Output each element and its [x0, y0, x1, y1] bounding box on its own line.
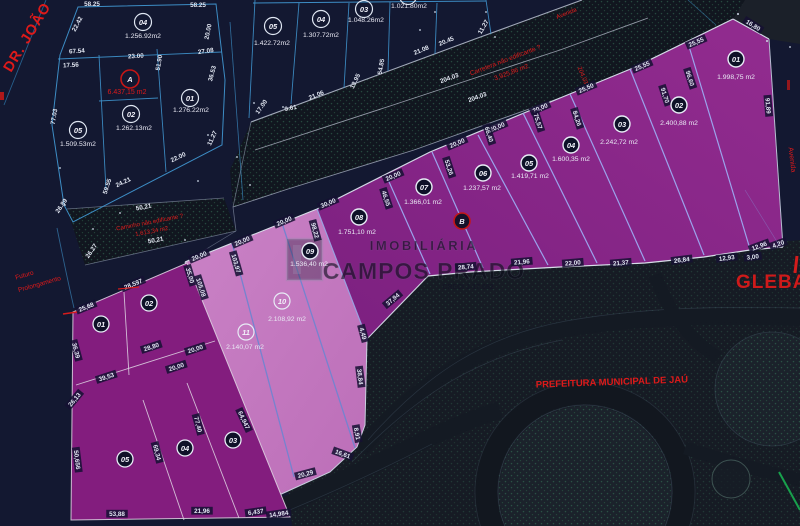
svg-text:01: 01 — [97, 320, 105, 329]
svg-text:1.237,57 m2: 1.237,57 m2 — [463, 185, 501, 192]
svg-text:01: 01 — [732, 55, 740, 64]
svg-text:6.437,15 m2: 6.437,15 m2 — [108, 89, 147, 96]
svg-text:11: 11 — [242, 328, 250, 337]
svg-text:1.751,10 m2: 1.751,10 m2 — [338, 229, 376, 236]
svg-text:2.108,92 m2: 2.108,92 m2 — [268, 316, 306, 323]
svg-text:21,37: 21,37 — [613, 259, 630, 267]
svg-text:1.536,40 m2: 1.536,40 m2 — [290, 261, 328, 268]
svg-text:1.366,01 m2: 1.366,01 m2 — [404, 199, 442, 206]
svg-text:1.262.13m2: 1.262.13m2 — [116, 125, 152, 132]
svg-text:B: B — [459, 217, 465, 226]
svg-text:IMOBILIÁRIA: IMOBILIÁRIA — [370, 238, 478, 253]
svg-text:02: 02 — [127, 110, 136, 119]
svg-text:17.56: 17.56 — [63, 61, 80, 69]
svg-text:GLEBA A: GLEBA A — [736, 272, 800, 293]
svg-text:CRECI J-17.652: CRECI J-17.652 — [442, 284, 493, 291]
svg-text:23.00: 23.00 — [128, 52, 145, 60]
svg-text:91,89: 91,89 — [763, 98, 771, 115]
svg-text:01: 01 — [186, 94, 194, 103]
svg-text:1.419,71 m2: 1.419,71 m2 — [511, 173, 549, 180]
svg-text:1.600,35 m2: 1.600,35 m2 — [552, 156, 590, 163]
svg-text:1.256.92m2: 1.256.92m2 — [125, 33, 161, 40]
svg-text:1.422.72m2: 1.422.72m2 — [254, 40, 290, 47]
svg-text:58.25: 58.25 — [190, 2, 206, 9]
svg-text:05: 05 — [525, 159, 534, 168]
svg-text:1.307.72m2: 1.307.72m2 — [303, 32, 339, 39]
svg-text:08: 08 — [355, 213, 364, 222]
svg-text:A: A — [126, 75, 132, 84]
svg-text:04: 04 — [139, 18, 148, 27]
svg-text:2.242,72 m2: 2.242,72 m2 — [600, 139, 638, 146]
svg-text:07: 07 — [420, 183, 429, 192]
svg-text:04: 04 — [181, 444, 190, 453]
svg-text:28,74: 28,74 — [458, 263, 475, 271]
svg-text:1.509.53m2: 1.509.53m2 — [60, 141, 96, 148]
svg-text:03: 03 — [618, 120, 627, 129]
svg-text:05: 05 — [121, 455, 130, 464]
svg-text:21,96: 21,96 — [514, 258, 531, 266]
svg-text:02: 02 — [675, 101, 684, 110]
svg-text:22,00: 22,00 — [565, 259, 582, 267]
svg-text:CAMPOS PRADO: CAMPOS PRADO — [323, 258, 525, 284]
svg-text:05: 05 — [74, 126, 83, 135]
svg-text:02: 02 — [145, 299, 154, 308]
svg-text:03: 03 — [229, 436, 238, 445]
svg-text:2.140,07 m2: 2.140,07 m2 — [226, 344, 264, 351]
svg-text:53,88: 53,88 — [109, 511, 125, 518]
svg-text:06: 06 — [479, 169, 488, 178]
svg-text:05: 05 — [269, 22, 278, 31]
svg-text:1.276.22m2: 1.276.22m2 — [173, 107, 209, 114]
svg-text:10: 10 — [278, 297, 287, 306]
svg-text:03: 03 — [360, 5, 369, 14]
svg-text:21,96: 21,96 — [194, 508, 210, 515]
svg-text:1.998,75 m2: 1.998,75 m2 — [717, 74, 755, 81]
svg-text:04: 04 — [317, 15, 326, 24]
svg-text:09: 09 — [306, 247, 315, 256]
svg-text:04: 04 — [567, 141, 576, 150]
svg-text:67.54: 67.54 — [69, 47, 86, 55]
svg-text:58.25: 58.25 — [84, 1, 100, 8]
svg-text:2.400,88 m2: 2.400,88 m2 — [660, 120, 698, 127]
svg-text:1.048.26m2: 1.048.26m2 — [348, 17, 384, 24]
